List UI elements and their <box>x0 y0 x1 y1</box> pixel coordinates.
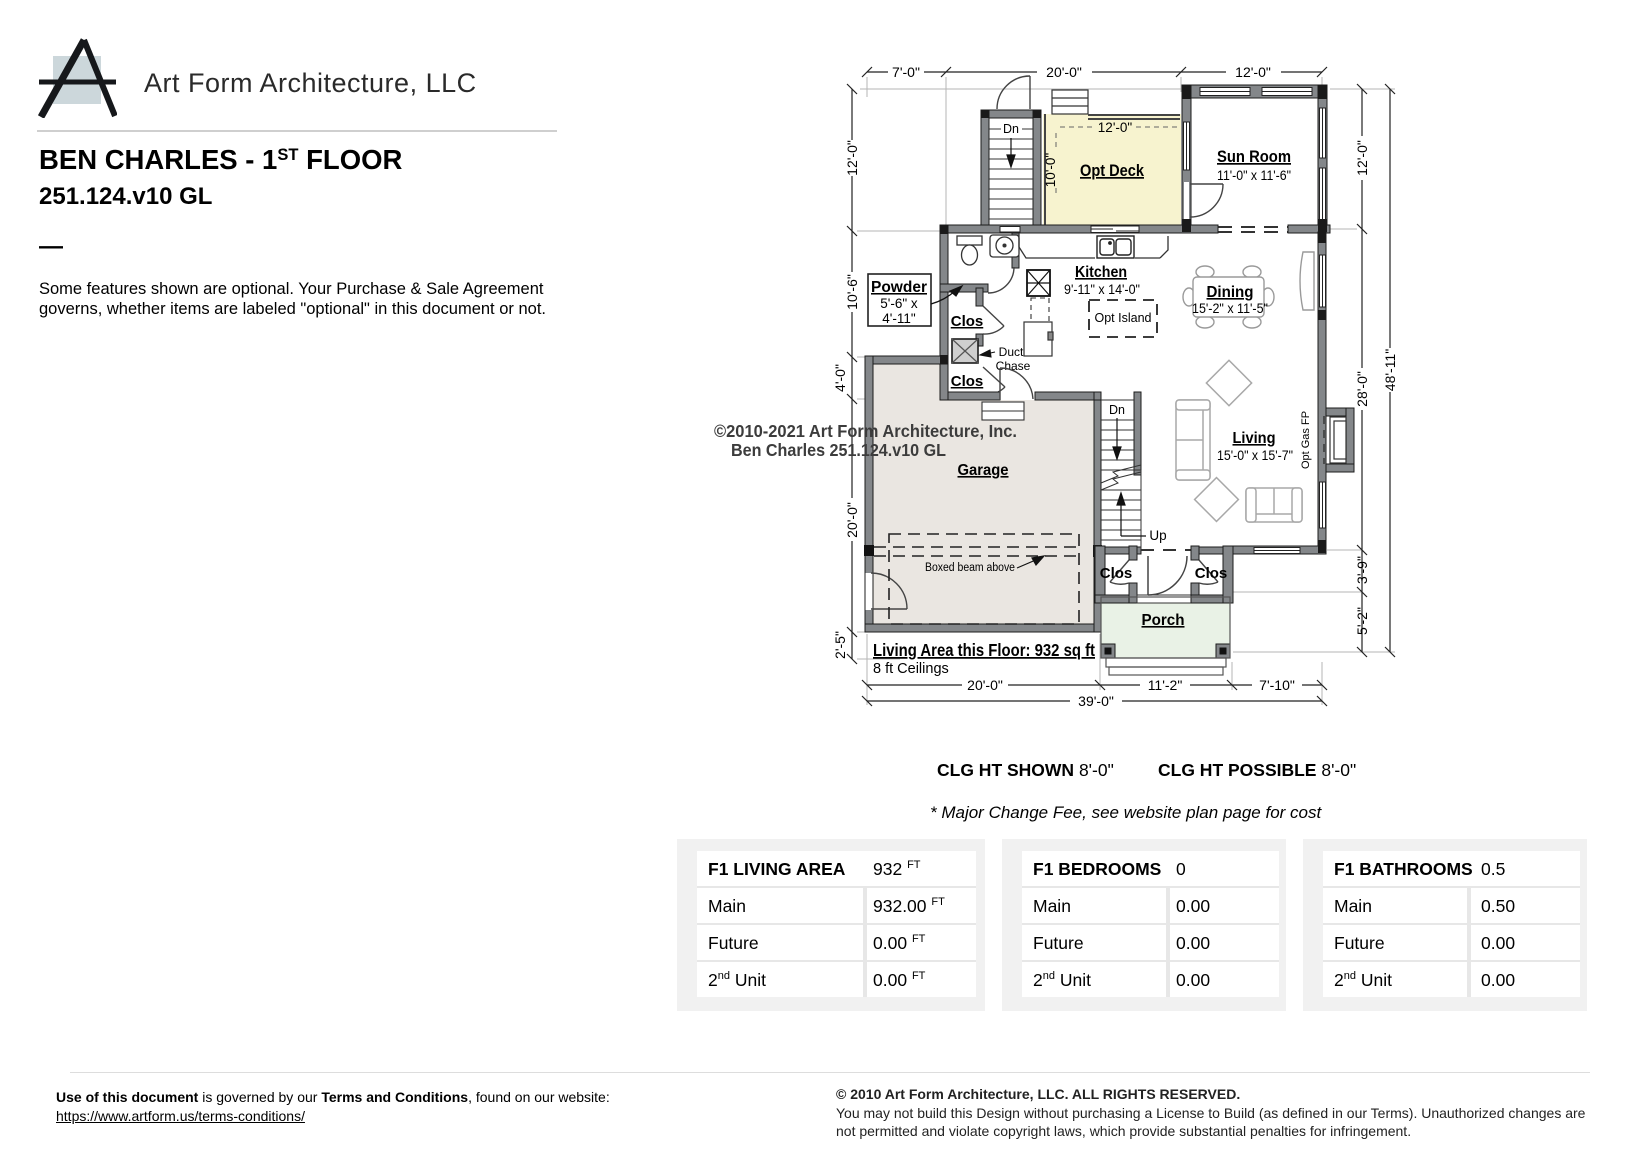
svg-text:15'-2" x 11'-5": 15'-2" x 11'-5" <box>1192 300 1268 316</box>
svg-text:39'-0": 39'-0" <box>1078 693 1114 709</box>
svg-text:12'-0": 12'-0" <box>1235 64 1271 80</box>
svg-text:2'-5": 2'-5" <box>832 631 848 659</box>
svg-text:Dn: Dn <box>1109 403 1125 417</box>
svg-text:Dn: Dn <box>1003 122 1019 136</box>
svg-text:Garage: Garage <box>958 462 1009 479</box>
svg-text:©2010-2021 Art Form Architectu: ©2010-2021 Art Form Architecture, Inc. <box>714 421 1017 441</box>
svg-text:Clos: Clos <box>1100 565 1133 582</box>
svg-text:Up: Up <box>1149 528 1166 543</box>
svg-text:15'-0" x 15'-7": 15'-0" x 15'-7" <box>1217 447 1293 463</box>
svg-text:11'-0" x 11'-6": 11'-0" x 11'-6" <box>1217 167 1291 183</box>
svg-text:Dining: Dining <box>1207 284 1254 301</box>
svg-text:Opt Island: Opt Island <box>1095 311 1152 325</box>
svg-text:5'-6" x: 5'-6" x <box>880 296 918 311</box>
svg-text:7'-10": 7'-10" <box>1259 677 1295 693</box>
svg-text:10'-6": 10'-6" <box>844 274 860 310</box>
svg-text:Opt Gas FP: Opt Gas FP <box>1300 411 1312 469</box>
svg-text:12'-0": 12'-0" <box>844 140 860 176</box>
svg-text:Clos: Clos <box>951 373 984 390</box>
svg-text:Sun Room: Sun Room <box>1217 147 1291 166</box>
svg-text:Kitchen: Kitchen <box>1075 264 1127 281</box>
svg-text:Opt Deck: Opt Deck <box>1080 161 1144 180</box>
svg-text:20'-0": 20'-0" <box>1046 64 1082 80</box>
svg-text:Living Area this Floor: 932 sq: Living Area this Floor: 932 sq ft <box>873 640 1095 660</box>
svg-text:5'-2": 5'-2" <box>1354 607 1370 635</box>
svg-text:Porch: Porch <box>1142 612 1185 629</box>
svg-text:12'-0": 12'-0" <box>1354 140 1370 176</box>
svg-text:3'-9": 3'-9" <box>1354 556 1370 584</box>
svg-text:20'-0": 20'-0" <box>844 502 860 538</box>
svg-text:4'-11": 4'-11" <box>882 311 916 326</box>
svg-text:12'-0": 12'-0" <box>1098 120 1133 135</box>
svg-text:Duct: Duct <box>999 345 1024 359</box>
svg-text:Ben Charles 251.124.v10 GL: Ben Charles 251.124.v10 GL <box>731 440 946 460</box>
svg-text:Living: Living <box>1233 430 1276 447</box>
svg-text:7'-0": 7'-0" <box>892 64 920 80</box>
svg-text:10'-0": 10'-0" <box>1043 153 1058 188</box>
svg-text:11'-2": 11'-2" <box>1148 677 1183 693</box>
svg-text:9'-11" x 14'-0": 9'-11" x 14'-0" <box>1064 281 1140 297</box>
svg-text:Boxed beam above: Boxed beam above <box>925 562 1015 574</box>
svg-text:Clos: Clos <box>951 313 984 330</box>
svg-text:48'-11": 48'-11" <box>1382 349 1398 391</box>
svg-text:Powder: Powder <box>871 279 927 296</box>
svg-text:28'-0": 28'-0" <box>1354 371 1370 407</box>
svg-text:8 ft Ceilings: 8 ft Ceilings <box>873 661 949 677</box>
svg-text:Clos: Clos <box>1195 565 1228 582</box>
svg-text:20'-0": 20'-0" <box>967 677 1003 693</box>
svg-text:4'-0": 4'-0" <box>832 364 848 392</box>
